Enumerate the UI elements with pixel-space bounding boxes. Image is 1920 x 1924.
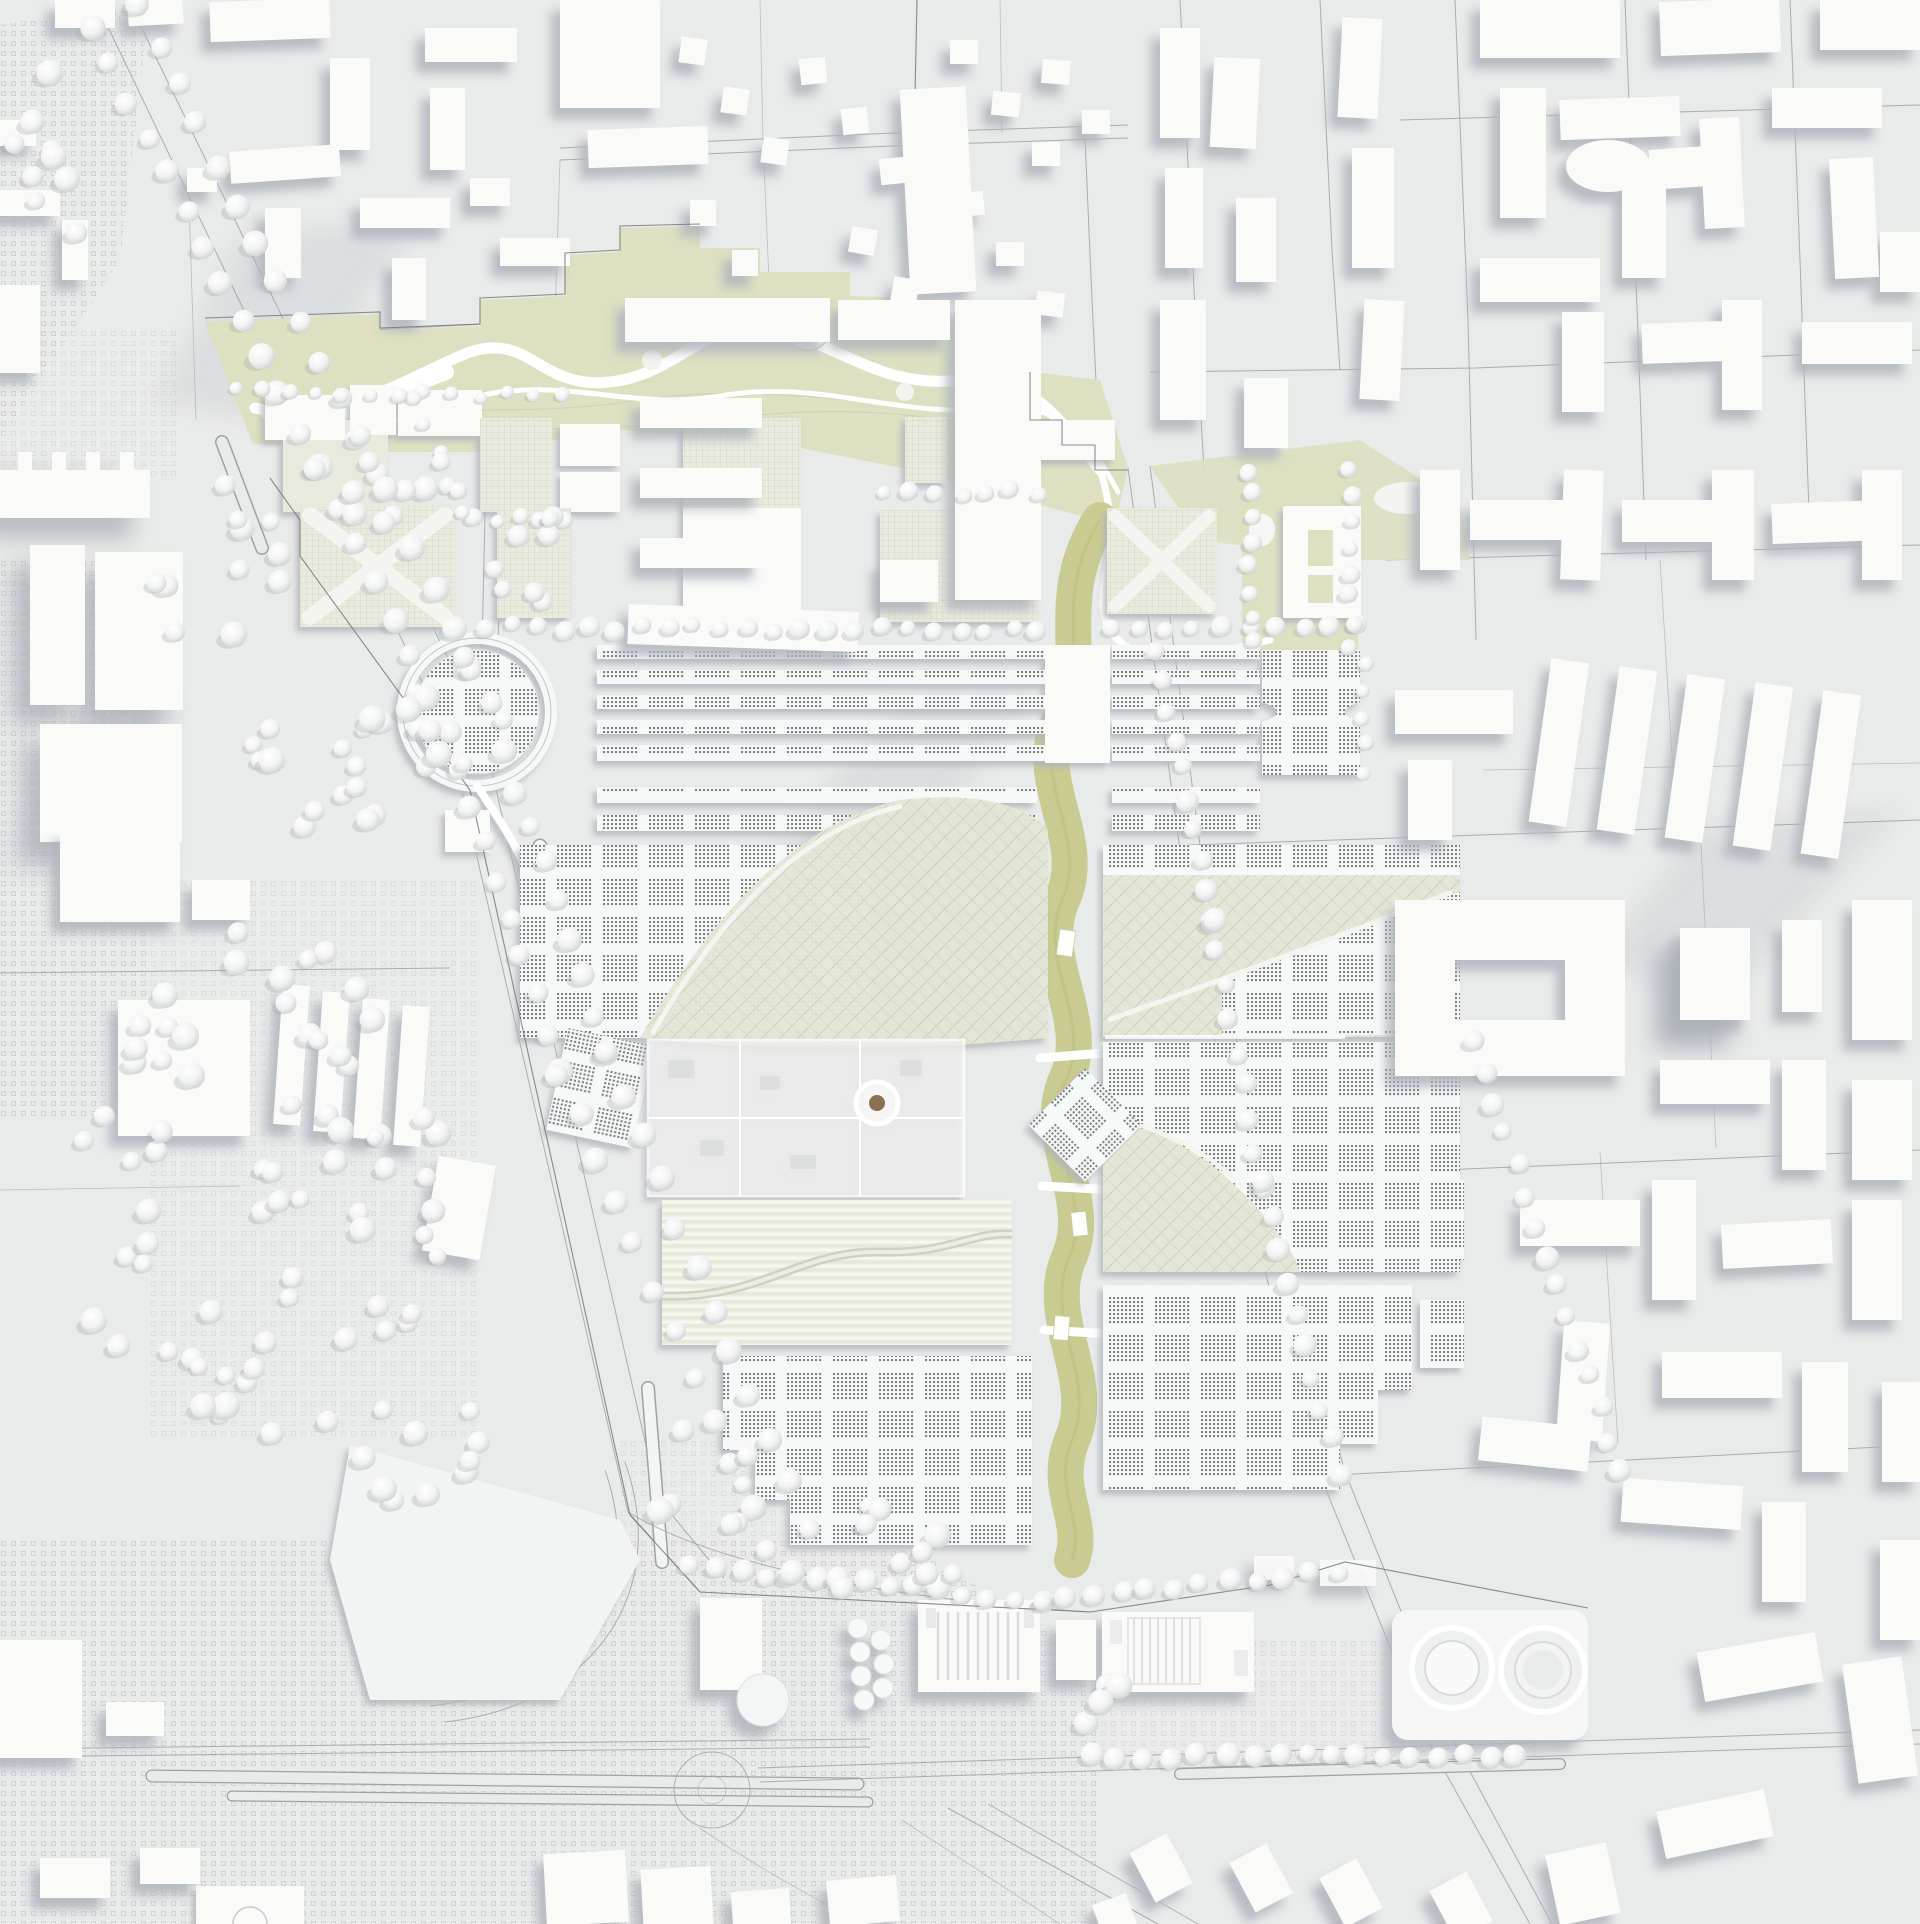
glass-hall xyxy=(648,1040,964,1196)
glass-annex-east xyxy=(1105,1035,1345,1039)
plate-east-main xyxy=(1103,1042,1460,1272)
site-model xyxy=(0,0,1920,1924)
gas-holder xyxy=(737,1674,789,1726)
square-pavilion xyxy=(196,1886,304,1924)
x-plate-east xyxy=(1107,508,1217,614)
organic-building xyxy=(1566,140,1709,192)
strip-gap-building xyxy=(1045,645,1110,763)
architectural-model-photo xyxy=(0,0,1920,1924)
tank-building xyxy=(1392,1610,1588,1740)
hatch-building xyxy=(918,1600,1040,1692)
